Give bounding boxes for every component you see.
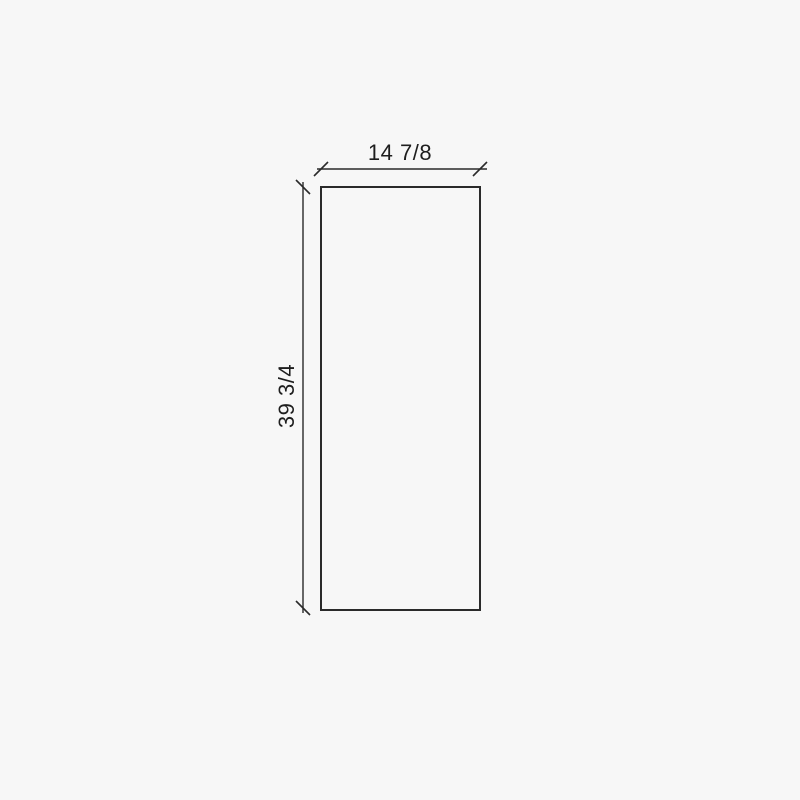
- height-dimension-label: 39 3/4: [275, 316, 299, 476]
- panel-outline: [321, 187, 480, 610]
- drawing-canvas: 14 7/8 39 3/4: [0, 0, 800, 800]
- technical-drawing: [0, 0, 800, 800]
- width-dimension-label: 14 7/8: [320, 141, 480, 165]
